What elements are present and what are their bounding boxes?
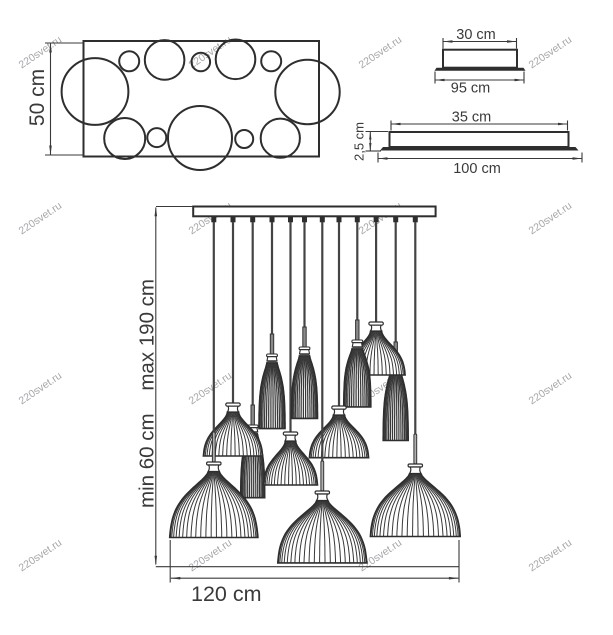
svg-text:35 cm: 35 cm	[452, 110, 492, 126]
svg-text:30 cm: 30 cm	[456, 27, 496, 43]
svg-text:120 cm: 120 cm	[191, 582, 262, 606]
svg-text:2,5 cm: 2,5 cm	[352, 122, 367, 161]
svg-text:min 60 cm max 190 cm: min 60 cm max 190 cm	[135, 279, 158, 508]
svg-text:95 cm: 95 cm	[451, 81, 491, 97]
svg-text:100 cm: 100 cm	[453, 161, 501, 177]
svg-text:50 cm: 50 cm	[26, 69, 49, 126]
